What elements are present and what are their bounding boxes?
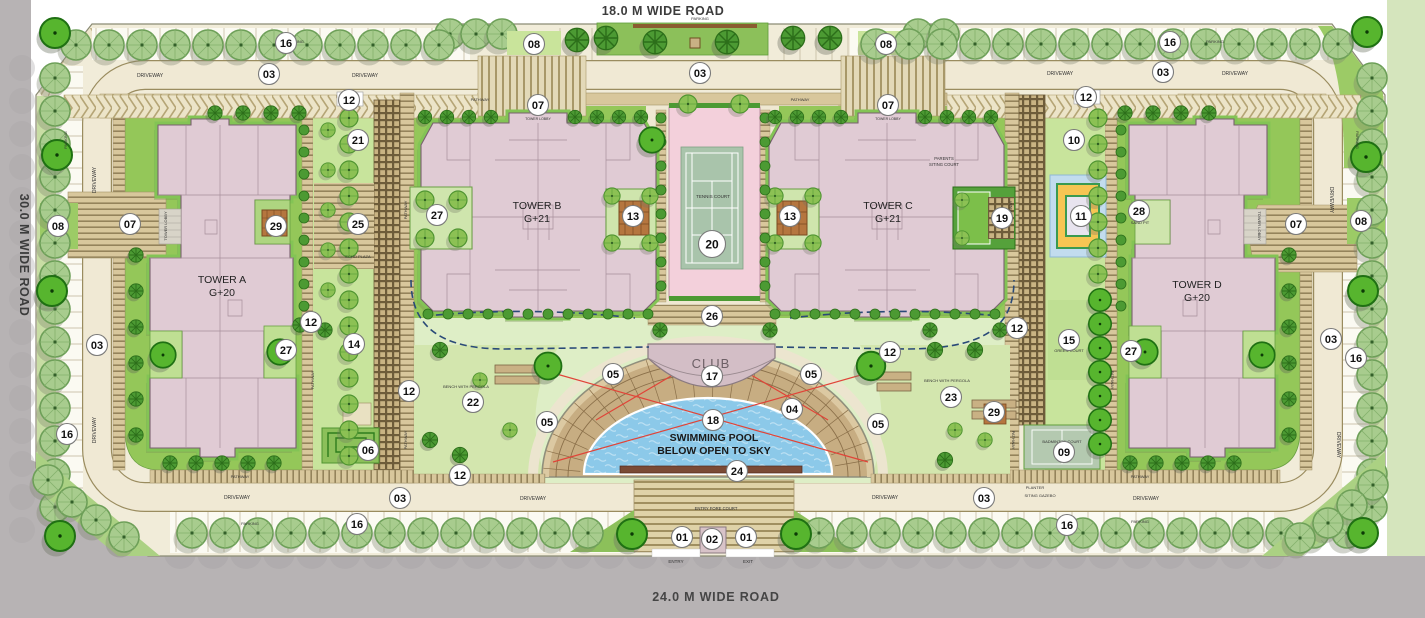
svg-text:07: 07 bbox=[124, 219, 136, 231]
svg-text:03: 03 bbox=[1325, 334, 1337, 346]
svg-text:08: 08 bbox=[880, 39, 892, 51]
svg-text:PARKING: PARKING bbox=[63, 131, 68, 149]
svg-text:G+21: G+21 bbox=[524, 213, 550, 225]
svg-text:27: 27 bbox=[431, 210, 443, 222]
svg-text:16: 16 bbox=[280, 38, 292, 50]
svg-text:TOWER LOBBY: TOWER LOBBY bbox=[1257, 211, 1262, 241]
svg-text:27: 27 bbox=[1125, 346, 1137, 358]
svg-text:11: 11 bbox=[1075, 211, 1087, 223]
svg-text:18.0 M WIDE ROAD: 18.0 M WIDE ROAD bbox=[602, 4, 725, 18]
svg-text:DRIVEWAY: DRIVEWAY bbox=[92, 416, 98, 443]
svg-text:08: 08 bbox=[1355, 216, 1367, 228]
svg-text:14: 14 bbox=[348, 339, 361, 351]
svg-text:26: 26 bbox=[706, 311, 718, 323]
svg-text:04: 04 bbox=[786, 404, 799, 416]
svg-text:TENNIS COURT: TENNIS COURT bbox=[696, 194, 730, 199]
svg-text:TOWER C: TOWER C bbox=[863, 200, 913, 212]
svg-text:05: 05 bbox=[805, 369, 817, 381]
svg-text:07: 07 bbox=[1290, 219, 1302, 231]
svg-text:ENTRY: ENTRY bbox=[668, 559, 683, 564]
svg-text:05: 05 bbox=[872, 419, 884, 431]
svg-text:07: 07 bbox=[532, 100, 544, 112]
svg-text:TOWER D: TOWER D bbox=[1172, 279, 1222, 291]
svg-text:TOWER LOBBY: TOWER LOBBY bbox=[525, 117, 551, 121]
svg-text:22: 22 bbox=[467, 397, 479, 409]
svg-text:DRIVEWAY: DRIVEWAY bbox=[92, 166, 98, 193]
svg-text:12: 12 bbox=[884, 347, 896, 359]
svg-text:09: 09 bbox=[1058, 447, 1070, 459]
svg-text:PATHWAY: PATHWAY bbox=[310, 370, 315, 389]
svg-text:G+20: G+20 bbox=[209, 287, 235, 299]
svg-text:12: 12 bbox=[454, 470, 466, 482]
svg-text:05: 05 bbox=[607, 369, 619, 381]
svg-text:SWIMMING POOL: SWIMMING POOL bbox=[670, 432, 759, 444]
svg-text:EXIT: EXIT bbox=[743, 559, 753, 564]
svg-text:PATHWAY: PATHWAY bbox=[403, 200, 408, 219]
svg-text:16: 16 bbox=[351, 519, 363, 531]
svg-text:BENCH WITH PERGOLA: BENCH WITH PERGOLA bbox=[924, 378, 970, 383]
svg-text:24: 24 bbox=[731, 466, 744, 478]
svg-text:16: 16 bbox=[1164, 37, 1176, 49]
svg-text:PATHWAY: PATHWAY bbox=[403, 430, 408, 449]
svg-text:TOWER LOBBY: TOWER LOBBY bbox=[875, 117, 901, 121]
svg-text:DRIVEWAY: DRIVEWAY bbox=[1335, 432, 1341, 459]
svg-text:17: 17 bbox=[706, 371, 718, 383]
svg-text:28: 28 bbox=[1133, 206, 1145, 218]
svg-text:10: 10 bbox=[1068, 135, 1080, 147]
svg-text:PARKING: PARKING bbox=[1206, 39, 1224, 44]
svg-text:BENCH WITH PERGOLA: BENCH WITH PERGOLA bbox=[443, 384, 489, 389]
svg-text:DRIVEWAY: DRIVEWAY bbox=[137, 73, 164, 79]
svg-text:ENTRY FORE COURT: ENTRY FORE COURT bbox=[695, 506, 738, 511]
svg-text:ECHO PLAZA: ECHO PLAZA bbox=[345, 254, 371, 259]
svg-text:PARKING: PARKING bbox=[241, 521, 259, 526]
svg-text:29: 29 bbox=[270, 221, 282, 233]
svg-text:01: 01 bbox=[676, 532, 688, 544]
svg-text:08: 08 bbox=[52, 221, 64, 233]
svg-text:02: 02 bbox=[706, 534, 718, 546]
svg-text:08: 08 bbox=[528, 39, 540, 51]
svg-text:G+20: G+20 bbox=[1184, 292, 1210, 304]
svg-text:24.0 M WIDE ROAD: 24.0 M WIDE ROAD bbox=[652, 590, 779, 604]
svg-text:15: 15 bbox=[1063, 335, 1075, 347]
svg-text:27: 27 bbox=[280, 345, 292, 357]
svg-text:03: 03 bbox=[91, 340, 103, 352]
svg-text:PARENTS: PARENTS bbox=[934, 156, 954, 161]
svg-text:PATHWAY: PATHWAY bbox=[1131, 474, 1150, 479]
svg-text:13: 13 bbox=[784, 211, 796, 223]
svg-text:30.0 M WIDE ROAD: 30.0 M WIDE ROAD bbox=[17, 194, 31, 317]
svg-text:PARKING: PARKING bbox=[1131, 519, 1149, 524]
svg-text:07: 07 bbox=[882, 100, 894, 112]
svg-text:SITING GAZEBO: SITING GAZEBO bbox=[1024, 493, 1055, 498]
svg-text:23: 23 bbox=[945, 392, 957, 404]
svg-text:16: 16 bbox=[1350, 353, 1362, 365]
svg-text:01: 01 bbox=[740, 532, 752, 544]
svg-text:16: 16 bbox=[61, 429, 73, 441]
svg-text:12: 12 bbox=[305, 317, 317, 329]
svg-text:PARKING: PARKING bbox=[1355, 131, 1360, 149]
svg-text:DRIVEWAY: DRIVEWAY bbox=[1222, 71, 1249, 77]
svg-text:DRIVEWAY: DRIVEWAY bbox=[520, 496, 547, 502]
svg-text:03: 03 bbox=[978, 493, 990, 505]
svg-text:16: 16 bbox=[1061, 520, 1073, 532]
svg-text:29: 29 bbox=[988, 407, 1000, 419]
svg-text:DRIVEWAY: DRIVEWAY bbox=[872, 495, 899, 501]
svg-text:PLANTER: PLANTER bbox=[1026, 485, 1045, 490]
svg-text:12: 12 bbox=[403, 386, 415, 398]
svg-text:BELOW OPEN TO SKY: BELOW OPEN TO SKY bbox=[657, 445, 771, 457]
svg-text:DRIVEWAY: DRIVEWAY bbox=[1047, 71, 1074, 77]
svg-text:03: 03 bbox=[394, 493, 406, 505]
svg-text:21: 21 bbox=[352, 135, 364, 147]
svg-text:03: 03 bbox=[1157, 67, 1169, 79]
svg-text:13: 13 bbox=[627, 211, 639, 223]
svg-text:12: 12 bbox=[343, 95, 355, 107]
svg-text:DRIVEWAY: DRIVEWAY bbox=[352, 73, 379, 79]
svg-text:05: 05 bbox=[541, 417, 553, 429]
svg-text:DRIVEWAY: DRIVEWAY bbox=[1328, 187, 1334, 214]
svg-text:19: 19 bbox=[996, 213, 1008, 225]
svg-text:PATHWAY: PATHWAY bbox=[231, 474, 250, 479]
svg-text:25: 25 bbox=[352, 219, 364, 231]
svg-text:12: 12 bbox=[1080, 92, 1092, 104]
svg-text:PATHWAY: PATHWAY bbox=[471, 97, 490, 102]
svg-text:03: 03 bbox=[263, 69, 275, 81]
svg-text:TOWER LOBBY: TOWER LOBBY bbox=[163, 211, 168, 241]
svg-text:03: 03 bbox=[694, 68, 706, 80]
svg-text:12: 12 bbox=[1011, 323, 1023, 335]
svg-text:06: 06 bbox=[362, 445, 374, 457]
svg-text:TOWER A: TOWER A bbox=[198, 274, 246, 286]
svg-text:PATHWAY: PATHWAY bbox=[1110, 371, 1115, 390]
svg-text:TOWER B: TOWER B bbox=[513, 200, 562, 212]
svg-text:G+21: G+21 bbox=[875, 213, 901, 225]
svg-text:DRIVEWAY: DRIVEWAY bbox=[224, 495, 251, 501]
svg-text:SITING COURT: SITING COURT bbox=[929, 162, 959, 167]
svg-text:PATHWAY: PATHWAY bbox=[1011, 431, 1016, 450]
svg-text:18: 18 bbox=[707, 415, 719, 427]
svg-text:20: 20 bbox=[705, 237, 719, 251]
svg-text:DRIVEWAY: DRIVEWAY bbox=[1133, 496, 1160, 502]
svg-text:PATHWAY: PATHWAY bbox=[791, 97, 810, 102]
